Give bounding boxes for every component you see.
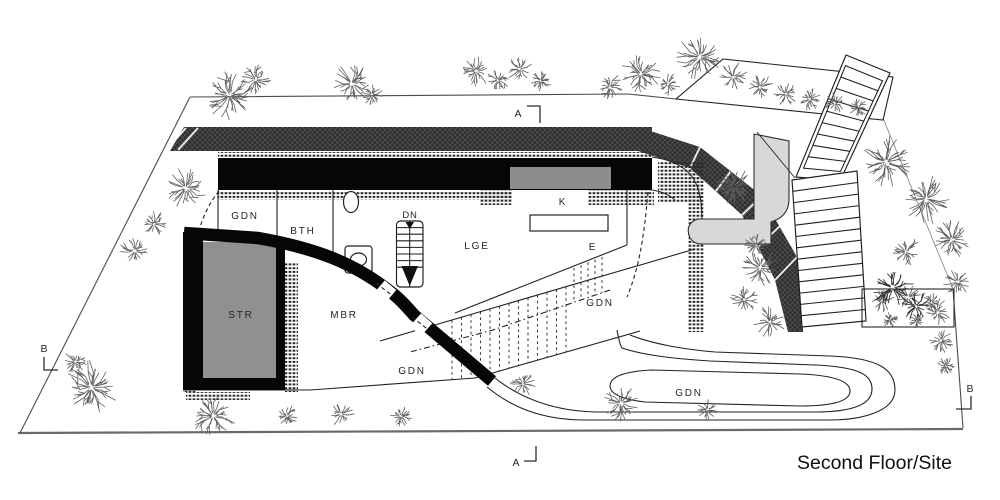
tree-icon xyxy=(676,38,720,79)
label-gdn-upper: GDN xyxy=(231,211,259,222)
tree-icon xyxy=(390,407,412,427)
tree-icon xyxy=(334,65,369,100)
tree-icon xyxy=(864,135,910,186)
tree-icon xyxy=(935,220,968,257)
tree-icon xyxy=(660,74,680,96)
label-k: K xyxy=(559,197,567,208)
label-lge: LGE xyxy=(464,241,489,252)
tree-icon xyxy=(144,211,166,234)
tree-icon xyxy=(488,70,509,89)
label-str: STR xyxy=(228,310,253,321)
north-wall xyxy=(218,157,702,222)
tree-icon xyxy=(605,388,638,422)
tree-icon xyxy=(510,375,535,395)
tree-icon xyxy=(622,55,660,92)
section-marker-a-bottom: A xyxy=(512,457,519,469)
section-marker-a-top: A xyxy=(514,108,521,120)
driveway-loop xyxy=(487,330,895,420)
label-gdn-lower: GDN xyxy=(398,366,426,377)
section-marker-b-left: B xyxy=(40,343,47,355)
tree-icon xyxy=(938,358,955,374)
tree-icon xyxy=(893,239,918,265)
section-marker-b-right: B xyxy=(966,383,973,395)
tree-icon xyxy=(463,57,486,87)
upper-stair-flight xyxy=(796,55,890,181)
tree-icon xyxy=(910,314,924,328)
tree-icon xyxy=(905,176,949,224)
tree-icon xyxy=(65,354,86,373)
label-e: E xyxy=(589,242,597,253)
tree-icon xyxy=(902,293,929,320)
tree-icon xyxy=(531,71,550,91)
drawing-title: Second Floor/Site xyxy=(797,452,952,474)
label-bth: BTH xyxy=(290,226,315,237)
floor-plan-canvas: GDN BTH DN LGE K E STR MBR GDN GDN GDN A… xyxy=(0,0,1000,500)
tree-icon xyxy=(884,312,898,327)
tree-icon xyxy=(929,330,953,353)
tree-icon xyxy=(749,76,773,98)
label-gdn-drive: GDN xyxy=(675,388,703,399)
kitchen-island xyxy=(530,215,608,231)
tree-icon xyxy=(600,76,622,99)
tree-icon xyxy=(195,396,234,435)
tree-icon xyxy=(774,83,796,104)
tree-icon xyxy=(509,57,532,79)
tree-icon xyxy=(922,293,940,312)
label-dn: DN xyxy=(402,210,417,221)
label-gdn-mid: GDN xyxy=(586,298,614,309)
tree-icon xyxy=(730,286,757,309)
tree-icon xyxy=(801,88,821,110)
tree-icon xyxy=(209,72,252,120)
label-mbr: MBR xyxy=(330,310,358,321)
tree-icon xyxy=(169,169,206,207)
clerestory-window xyxy=(510,167,611,189)
floor-plan-page: GDN BTH DN LGE K E STR MBR GDN GDN GDN A… xyxy=(0,0,1000,500)
tree-icon xyxy=(241,65,271,94)
tree-icon xyxy=(331,404,354,425)
tree-icon xyxy=(754,306,785,336)
lower-stair-flight xyxy=(792,171,866,327)
tree-icon xyxy=(720,63,748,90)
tree-icon xyxy=(279,406,298,424)
interior-stair xyxy=(397,221,424,287)
tree-icon xyxy=(698,399,717,420)
basin-fixture xyxy=(344,192,359,213)
tree-icon xyxy=(120,238,147,260)
room-labels: GDN BTH DN LGE K E STR MBR GDN GDN GDN xyxy=(228,197,703,399)
tree-icon xyxy=(68,360,115,412)
